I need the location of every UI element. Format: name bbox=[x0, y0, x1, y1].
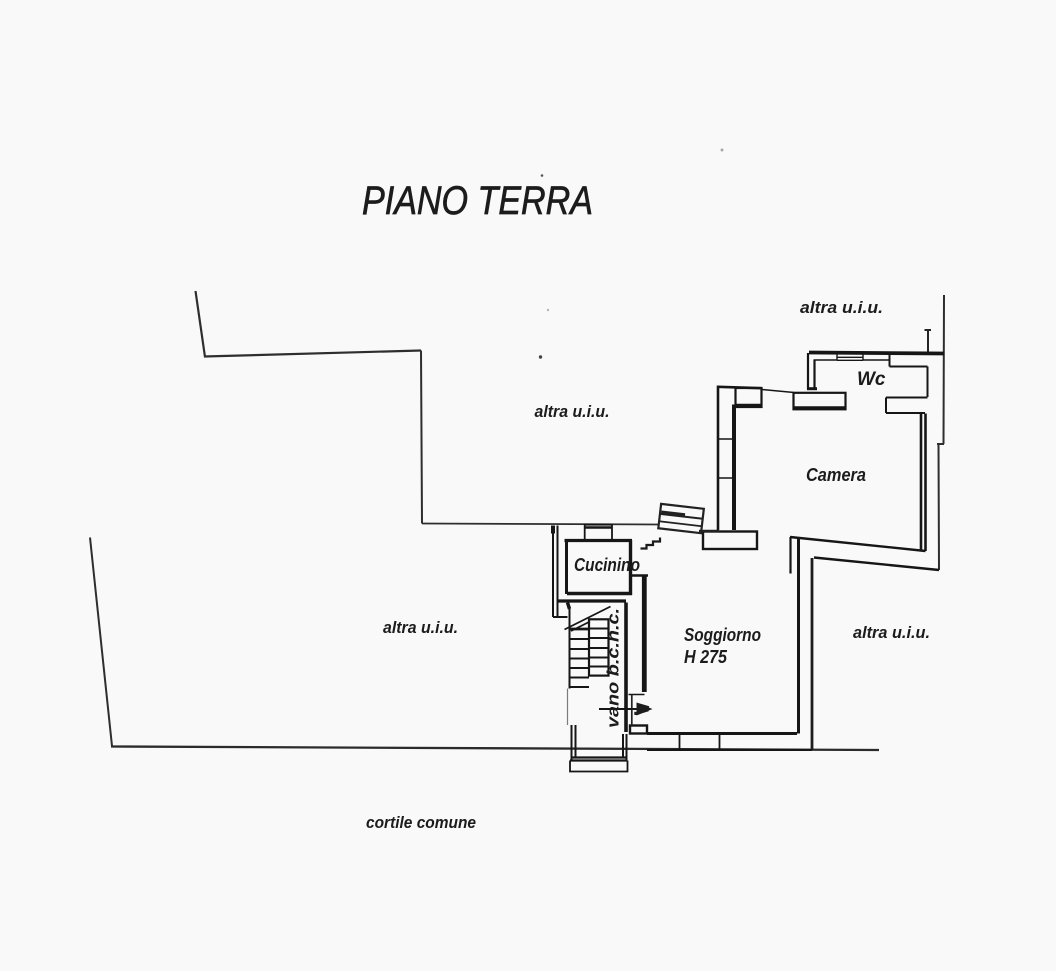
svg-text:altra u.i.u.: altra u.i.u. bbox=[535, 402, 610, 421]
svg-text:altra u.i.u.: altra u.i.u. bbox=[800, 298, 883, 317]
svg-text:PIANO TERRA: PIANO TERRA bbox=[362, 179, 593, 223]
svg-text:Wc: Wc bbox=[857, 369, 886, 390]
svg-text:cortile comune: cortile comune bbox=[366, 814, 476, 832]
svg-text:altra u.i.u.: altra u.i.u. bbox=[853, 623, 930, 642]
svg-text:Cucinino: Cucinino bbox=[574, 555, 640, 575]
svg-text:Camera: Camera bbox=[806, 465, 866, 485]
svg-text:H 275: H 275 bbox=[684, 646, 728, 667]
svg-text:altra u.i.u.: altra u.i.u. bbox=[383, 618, 458, 637]
svg-text:Soggiorno: Soggiorno bbox=[684, 624, 761, 645]
